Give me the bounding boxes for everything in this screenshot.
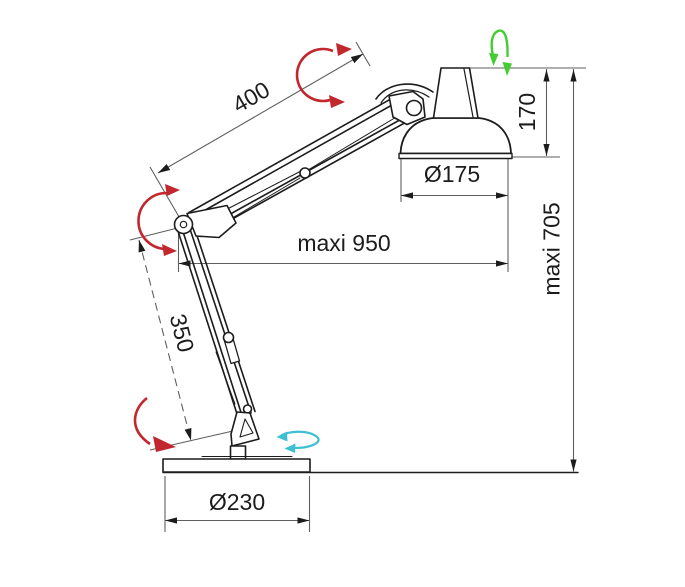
lamp-base-bracket [231,412,259,446]
head-joint-rotation-arrow-icon [297,43,352,108]
label-base-diameter: Ø230 [209,489,265,515]
label-max-reach: maxi 950 [297,230,390,256]
label-lower-arm-length: 350 [165,311,200,355]
lamp-base [163,459,310,472]
upper-arm-knob [300,168,310,178]
label-shade-diameter: Ø175 [424,161,480,187]
base-joint-rotation-arrow-icon [135,398,176,452]
base-swivel-arrow-icon [277,432,319,454]
lamp-head-bracket [376,84,433,124]
lower-arm-knob [224,333,234,343]
lamp-shade-rim [399,154,512,159]
lamp-cap [434,68,479,118]
lamp-elbow-joint [175,206,237,238]
label-head-height: 170 [514,93,540,131]
lamp-dimension-diagram: 400 350 maxi 950 170 maxi 705 Ø175 Ø230 [0,0,685,587]
lamp-shade [401,118,512,154]
head-knob [407,101,422,116]
label-max-height: maxi 705 [539,202,565,295]
label-upper-arm-length: 400 [228,76,274,118]
head-swivel-arrow-icon [489,31,512,76]
lamp-base-stem [231,446,246,459]
elbow-rotation-arrow-icon [138,184,180,256]
